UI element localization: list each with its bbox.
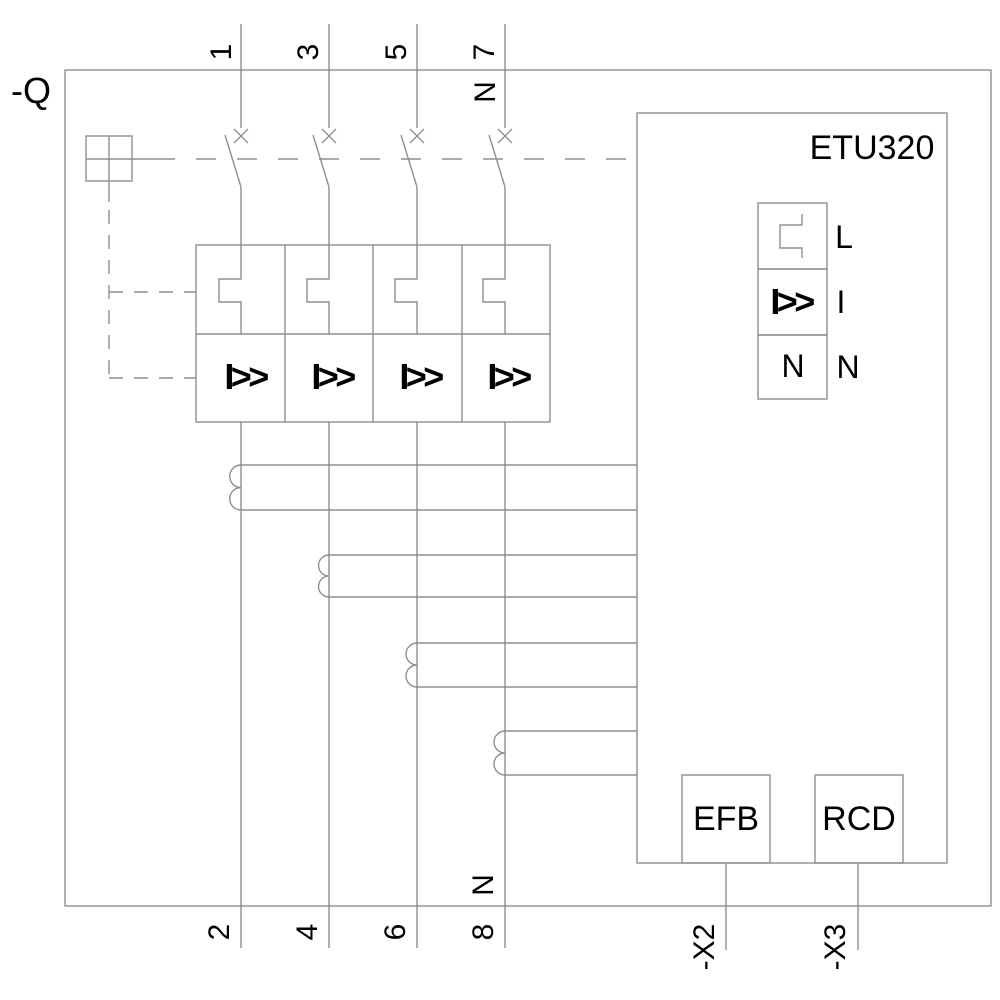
trip-cell-4-label: I>>	[487, 359, 528, 395]
trip-cell-2-label: I>>	[311, 359, 352, 395]
etu-row-l-label: L	[835, 221, 853, 253]
etu-row-n-label: N	[836, 351, 859, 383]
terminal-bottom-2: 2	[205, 924, 235, 941]
terminal-top-7: 7	[470, 44, 500, 61]
ct-wires-1	[241, 465, 637, 510]
long-time-trip-icon	[483, 187, 505, 334]
aux-terminal-x2: -X2	[690, 924, 720, 971]
ct-coil-icon	[494, 731, 505, 775]
breaker-contact-icon	[498, 129, 512, 143]
rcd-label: RCD	[822, 802, 896, 836]
pole-4-neutral	[483, 24, 637, 948]
trip-cell-3-label: I>>	[399, 359, 440, 395]
ct-coil-icon	[230, 465, 241, 510]
breaker-contact-icon	[322, 129, 336, 143]
etu-row-i-symbol: I>>	[770, 284, 811, 320]
device-designation: -Q	[11, 73, 51, 109]
breaker-enclosure-border	[65, 70, 991, 906]
ct-coil-icon	[406, 643, 417, 687]
ct-wires-4	[505, 731, 637, 775]
contact-blade-2	[313, 135, 329, 187]
terminal-bottom-4: 4	[293, 924, 323, 941]
terminal-top-neutral: N	[471, 81, 501, 103]
contact-blade-1	[225, 135, 241, 187]
terminal-bottom-8: 8	[469, 924, 499, 941]
contact-blade-3	[401, 135, 417, 187]
terminal-top-1: 1	[207, 44, 237, 61]
contact-blade-4	[489, 135, 505, 187]
pole-3	[395, 24, 637, 948]
terminal-bottom-6: 6	[381, 924, 411, 941]
long-time-trip-icon	[307, 187, 329, 334]
pole-2	[307, 24, 637, 948]
etu-box	[637, 113, 947, 863]
long-time-trip-icon	[219, 187, 241, 334]
ct-wires-2	[329, 555, 637, 597]
efb-label: EFB	[693, 802, 759, 836]
ct-coil-icon	[319, 555, 330, 597]
long-time-trip-icon	[395, 187, 417, 334]
terminal-bottom-neutral: N	[469, 874, 499, 896]
etu-row-n-symbol: N	[781, 350, 804, 382]
breaker-contact-icon	[410, 129, 424, 143]
pole-1	[219, 24, 637, 948]
aux-terminal-x3: -X3	[821, 924, 851, 971]
schematic-canvas: -Q ETU320 1 3 5 7 N 2 4 6 8 N I>> I>> I>…	[0, 0, 1000, 1000]
etu-row-i-label: I	[837, 286, 846, 318]
trip-cell-1-label: I>>	[224, 359, 265, 395]
trip-unit-label: ETU320	[810, 131, 935, 165]
etu-row-l-box	[758, 203, 827, 269]
breaker-contact-icon	[234, 129, 248, 143]
mechanical-linkage-icon	[86, 136, 155, 202]
ct-wires-3	[417, 643, 637, 687]
terminal-top-3: 3	[294, 44, 324, 61]
terminal-top-5: 5	[382, 44, 412, 61]
long-time-trip-icon	[780, 214, 802, 258]
